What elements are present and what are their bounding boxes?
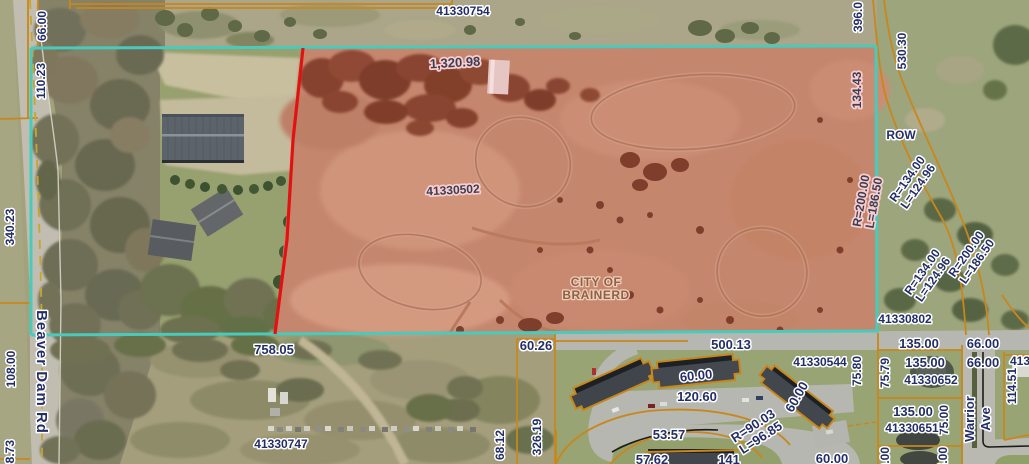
svg-text:68.73: 68.73 xyxy=(3,440,17,464)
svg-text:75.79: 75.79 xyxy=(878,358,892,388)
svg-text:41330747: 41330747 xyxy=(254,437,308,451)
svg-text:108.00: 108.00 xyxy=(4,350,18,387)
svg-text:530.30: 530.30 xyxy=(895,32,909,69)
svg-text:68.12: 68.12 xyxy=(493,430,507,460)
svg-text:ROW: ROW xyxy=(886,128,916,142)
svg-text:41330802: 41330802 xyxy=(878,312,932,326)
svg-text:500.13: 500.13 xyxy=(711,337,751,352)
svg-text:57.62: 57.62 xyxy=(636,452,669,464)
svg-text:75.80: 75.80 xyxy=(850,356,864,386)
svg-text:134.43: 134.43 xyxy=(850,71,864,108)
svg-text:60.00: 60.00 xyxy=(878,447,892,464)
svg-text:114.51: 114.51 xyxy=(1005,368,1019,404)
svg-text:41330502: 41330502 xyxy=(426,182,480,199)
svg-text:340.23: 340.23 xyxy=(3,208,17,245)
svg-text:60.26: 60.26 xyxy=(520,338,553,353)
svg-text:326.19: 326.19 xyxy=(530,418,544,455)
svg-text:396.0: 396.0 xyxy=(851,2,865,32)
svg-text:66.00: 66.00 xyxy=(967,355,1000,370)
svg-text:Warrior: Warrior xyxy=(962,396,977,442)
svg-text:75.00: 75.00 xyxy=(936,447,950,464)
svg-text:135.00: 135.00 xyxy=(905,355,945,370)
svg-text:120.60: 120.60 xyxy=(677,389,717,404)
svg-text:53.57: 53.57 xyxy=(653,427,686,442)
svg-text:Ave: Ave xyxy=(978,407,993,430)
svg-text:4133: 4133 xyxy=(1010,354,1029,368)
svg-text:41330754: 41330754 xyxy=(436,4,490,18)
svg-text:Beaver Dam Rd: Beaver Dam Rd xyxy=(33,310,50,434)
svg-text:135.00: 135.00 xyxy=(899,336,939,351)
svg-text:1,320.98: 1,320.98 xyxy=(429,54,480,72)
svg-text:141: 141 xyxy=(718,452,740,464)
svg-text:758.05: 758.05 xyxy=(254,342,294,357)
svg-text:41330651: 41330651 xyxy=(885,421,939,435)
svg-text:75.00: 75.00 xyxy=(937,405,951,435)
svg-text:CITY OF: CITY OF xyxy=(571,275,622,289)
svg-text:BRAINERD: BRAINERD xyxy=(562,288,629,302)
svg-text:135.00: 135.00 xyxy=(893,404,933,419)
svg-text:66.00: 66.00 xyxy=(967,336,1000,351)
svg-text:60.00: 60.00 xyxy=(816,451,849,464)
svg-text:41330652: 41330652 xyxy=(904,373,958,387)
svg-text:41330544: 41330544 xyxy=(793,355,847,369)
svg-text:110.23: 110.23 xyxy=(34,63,48,99)
svg-text:66.00: 66.00 xyxy=(35,11,49,41)
